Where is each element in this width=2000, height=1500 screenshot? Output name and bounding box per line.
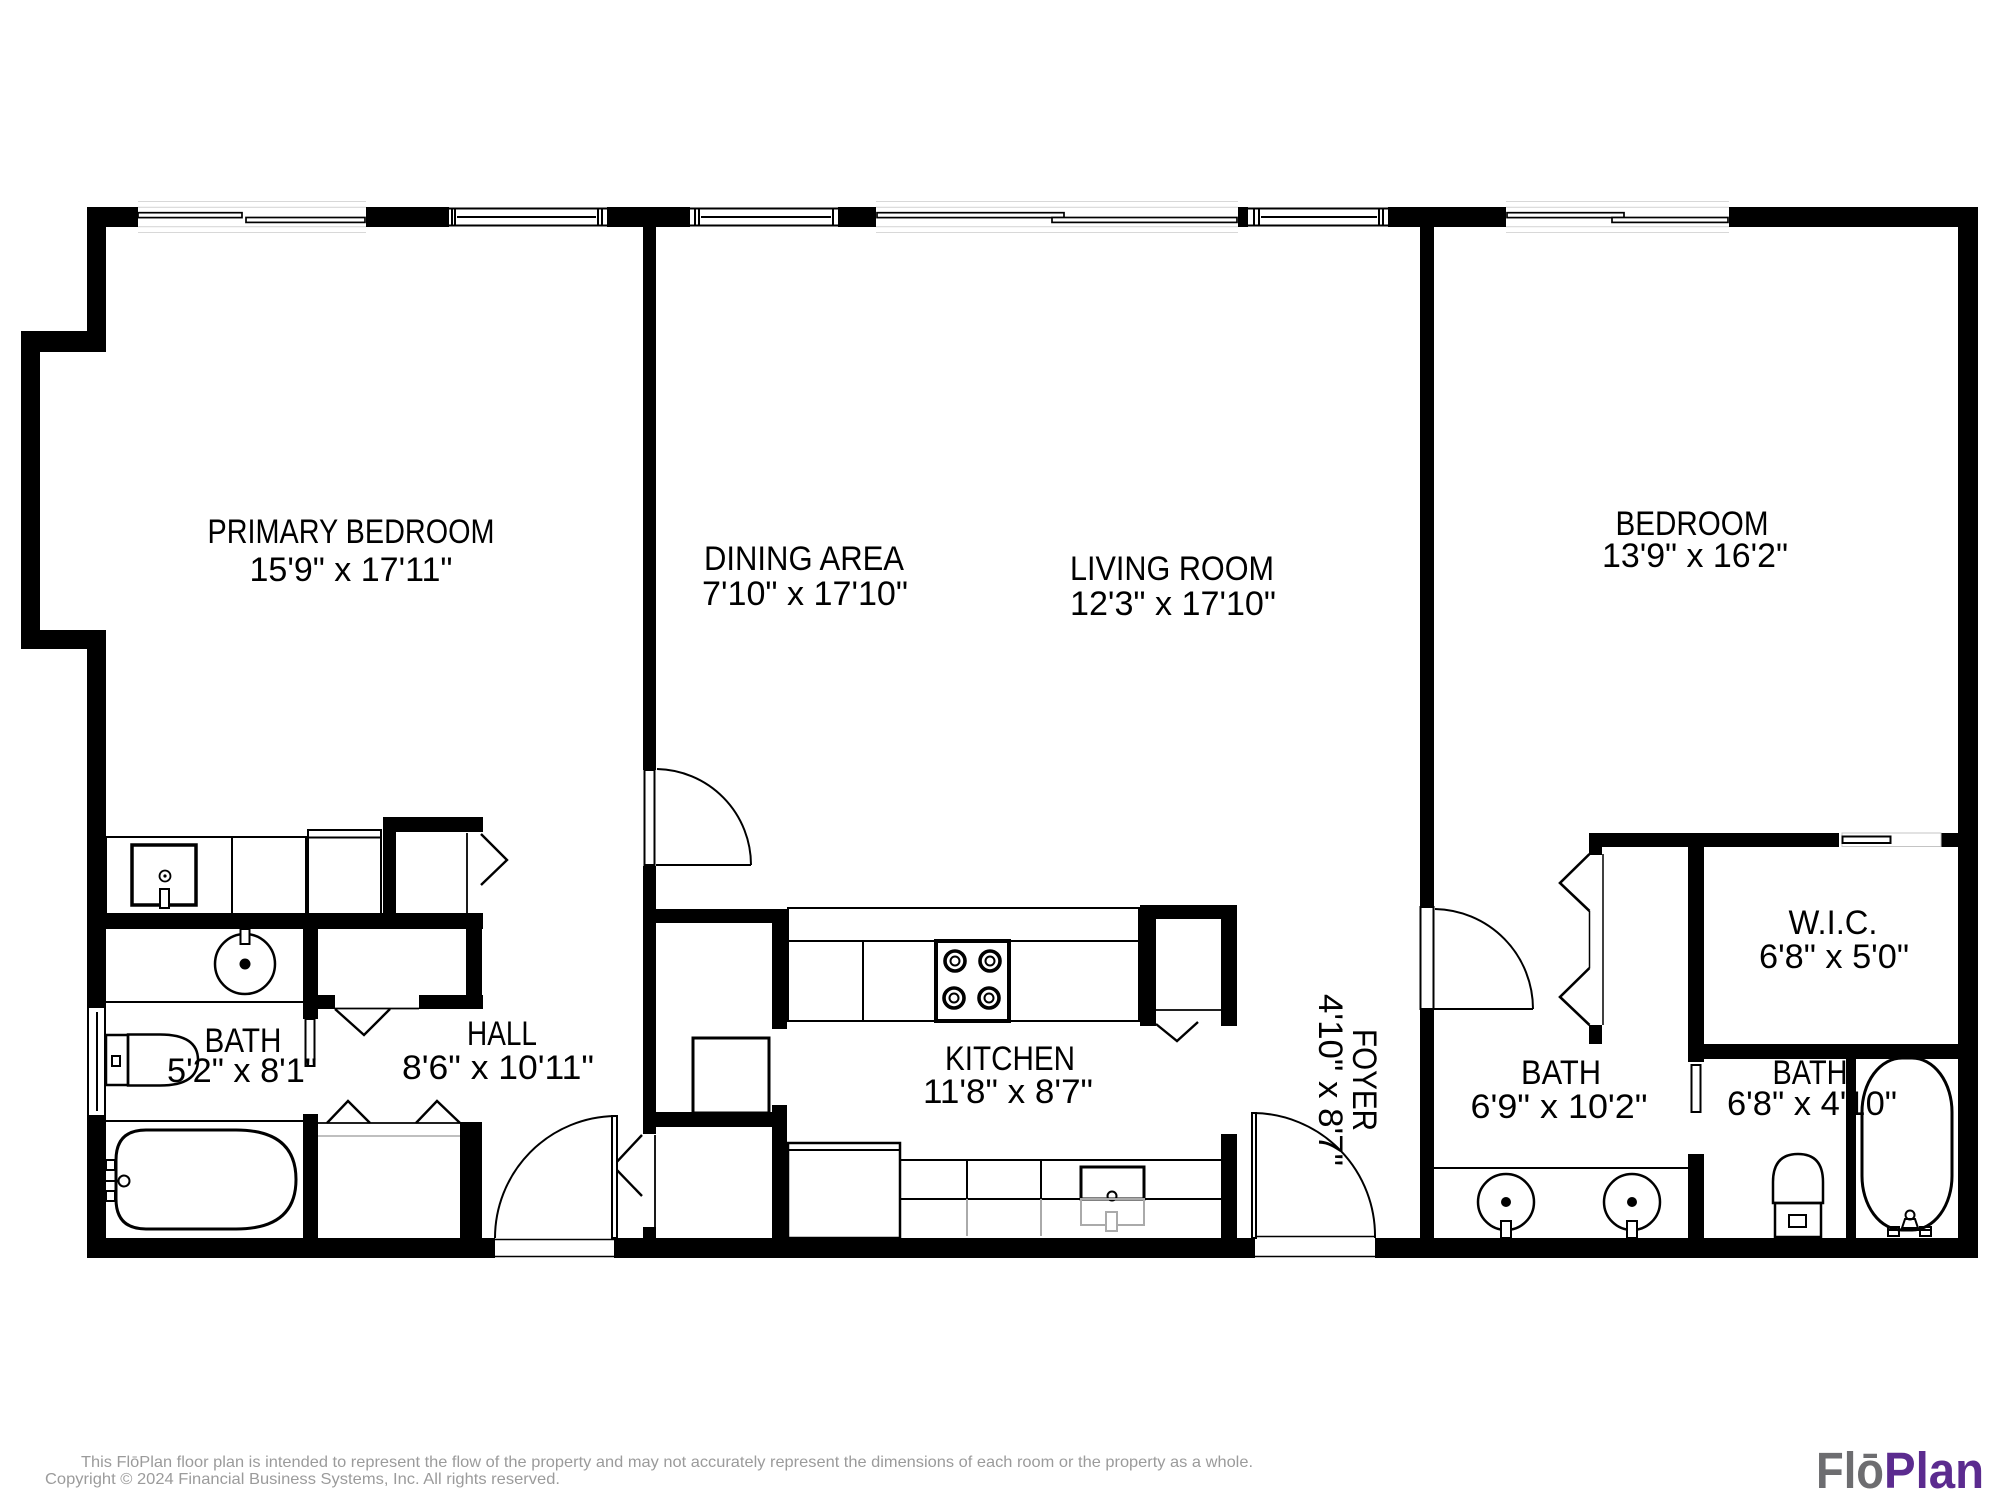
- svg-text:W.I.C.: W.I.C.: [1789, 904, 1878, 942]
- svg-text:8'6" x 10'11": 8'6" x 10'11": [402, 1049, 594, 1087]
- svg-text:5'2" x 8'1": 5'2" x 8'1": [167, 1052, 317, 1090]
- svg-text:DINING AREA: DINING AREA: [704, 540, 904, 578]
- svg-text:6'9" x 10'2": 6'9" x 10'2": [1471, 1088, 1648, 1126]
- svg-text:HALL: HALL: [467, 1015, 537, 1053]
- svg-text:LIVING ROOM: LIVING ROOM: [1070, 550, 1274, 588]
- svg-text:6'8" x 4'10": 6'8" x 4'10": [1727, 1085, 1897, 1123]
- svg-text:Flō: Flō: [1816, 1442, 1884, 1499]
- svg-text:11'8" x 8'7": 11'8" x 8'7": [923, 1073, 1093, 1111]
- svg-text:PRIMARY BEDROOM: PRIMARY BEDROOM: [208, 513, 495, 551]
- svg-text:7'10" x 17'10": 7'10" x 17'10": [702, 575, 908, 613]
- svg-text:Plan: Plan: [1884, 1442, 1984, 1499]
- svg-text:6'8" x 5'0": 6'8" x 5'0": [1759, 938, 1909, 976]
- svg-text:Copyright © 2024 Financial Bus: Copyright © 2024 Financial Business Syst…: [45, 1471, 560, 1488]
- svg-text:15'9" x 17'11": 15'9" x 17'11": [250, 551, 453, 589]
- svg-text:4'10" x 8'7": 4'10" x 8'7": [1311, 994, 1349, 1166]
- svg-text:13'9" x 16'2": 13'9" x 16'2": [1602, 537, 1788, 575]
- svg-text:BATH: BATH: [1521, 1054, 1601, 1092]
- svg-text:12'3" x 17'10": 12'3" x 17'10": [1070, 585, 1276, 623]
- svg-text:FOYER: FOYER: [1345, 1029, 1383, 1131]
- svg-text:This FlōPlan floor plan is int: This FlōPlan floor plan is intended to r…: [81, 1454, 1253, 1471]
